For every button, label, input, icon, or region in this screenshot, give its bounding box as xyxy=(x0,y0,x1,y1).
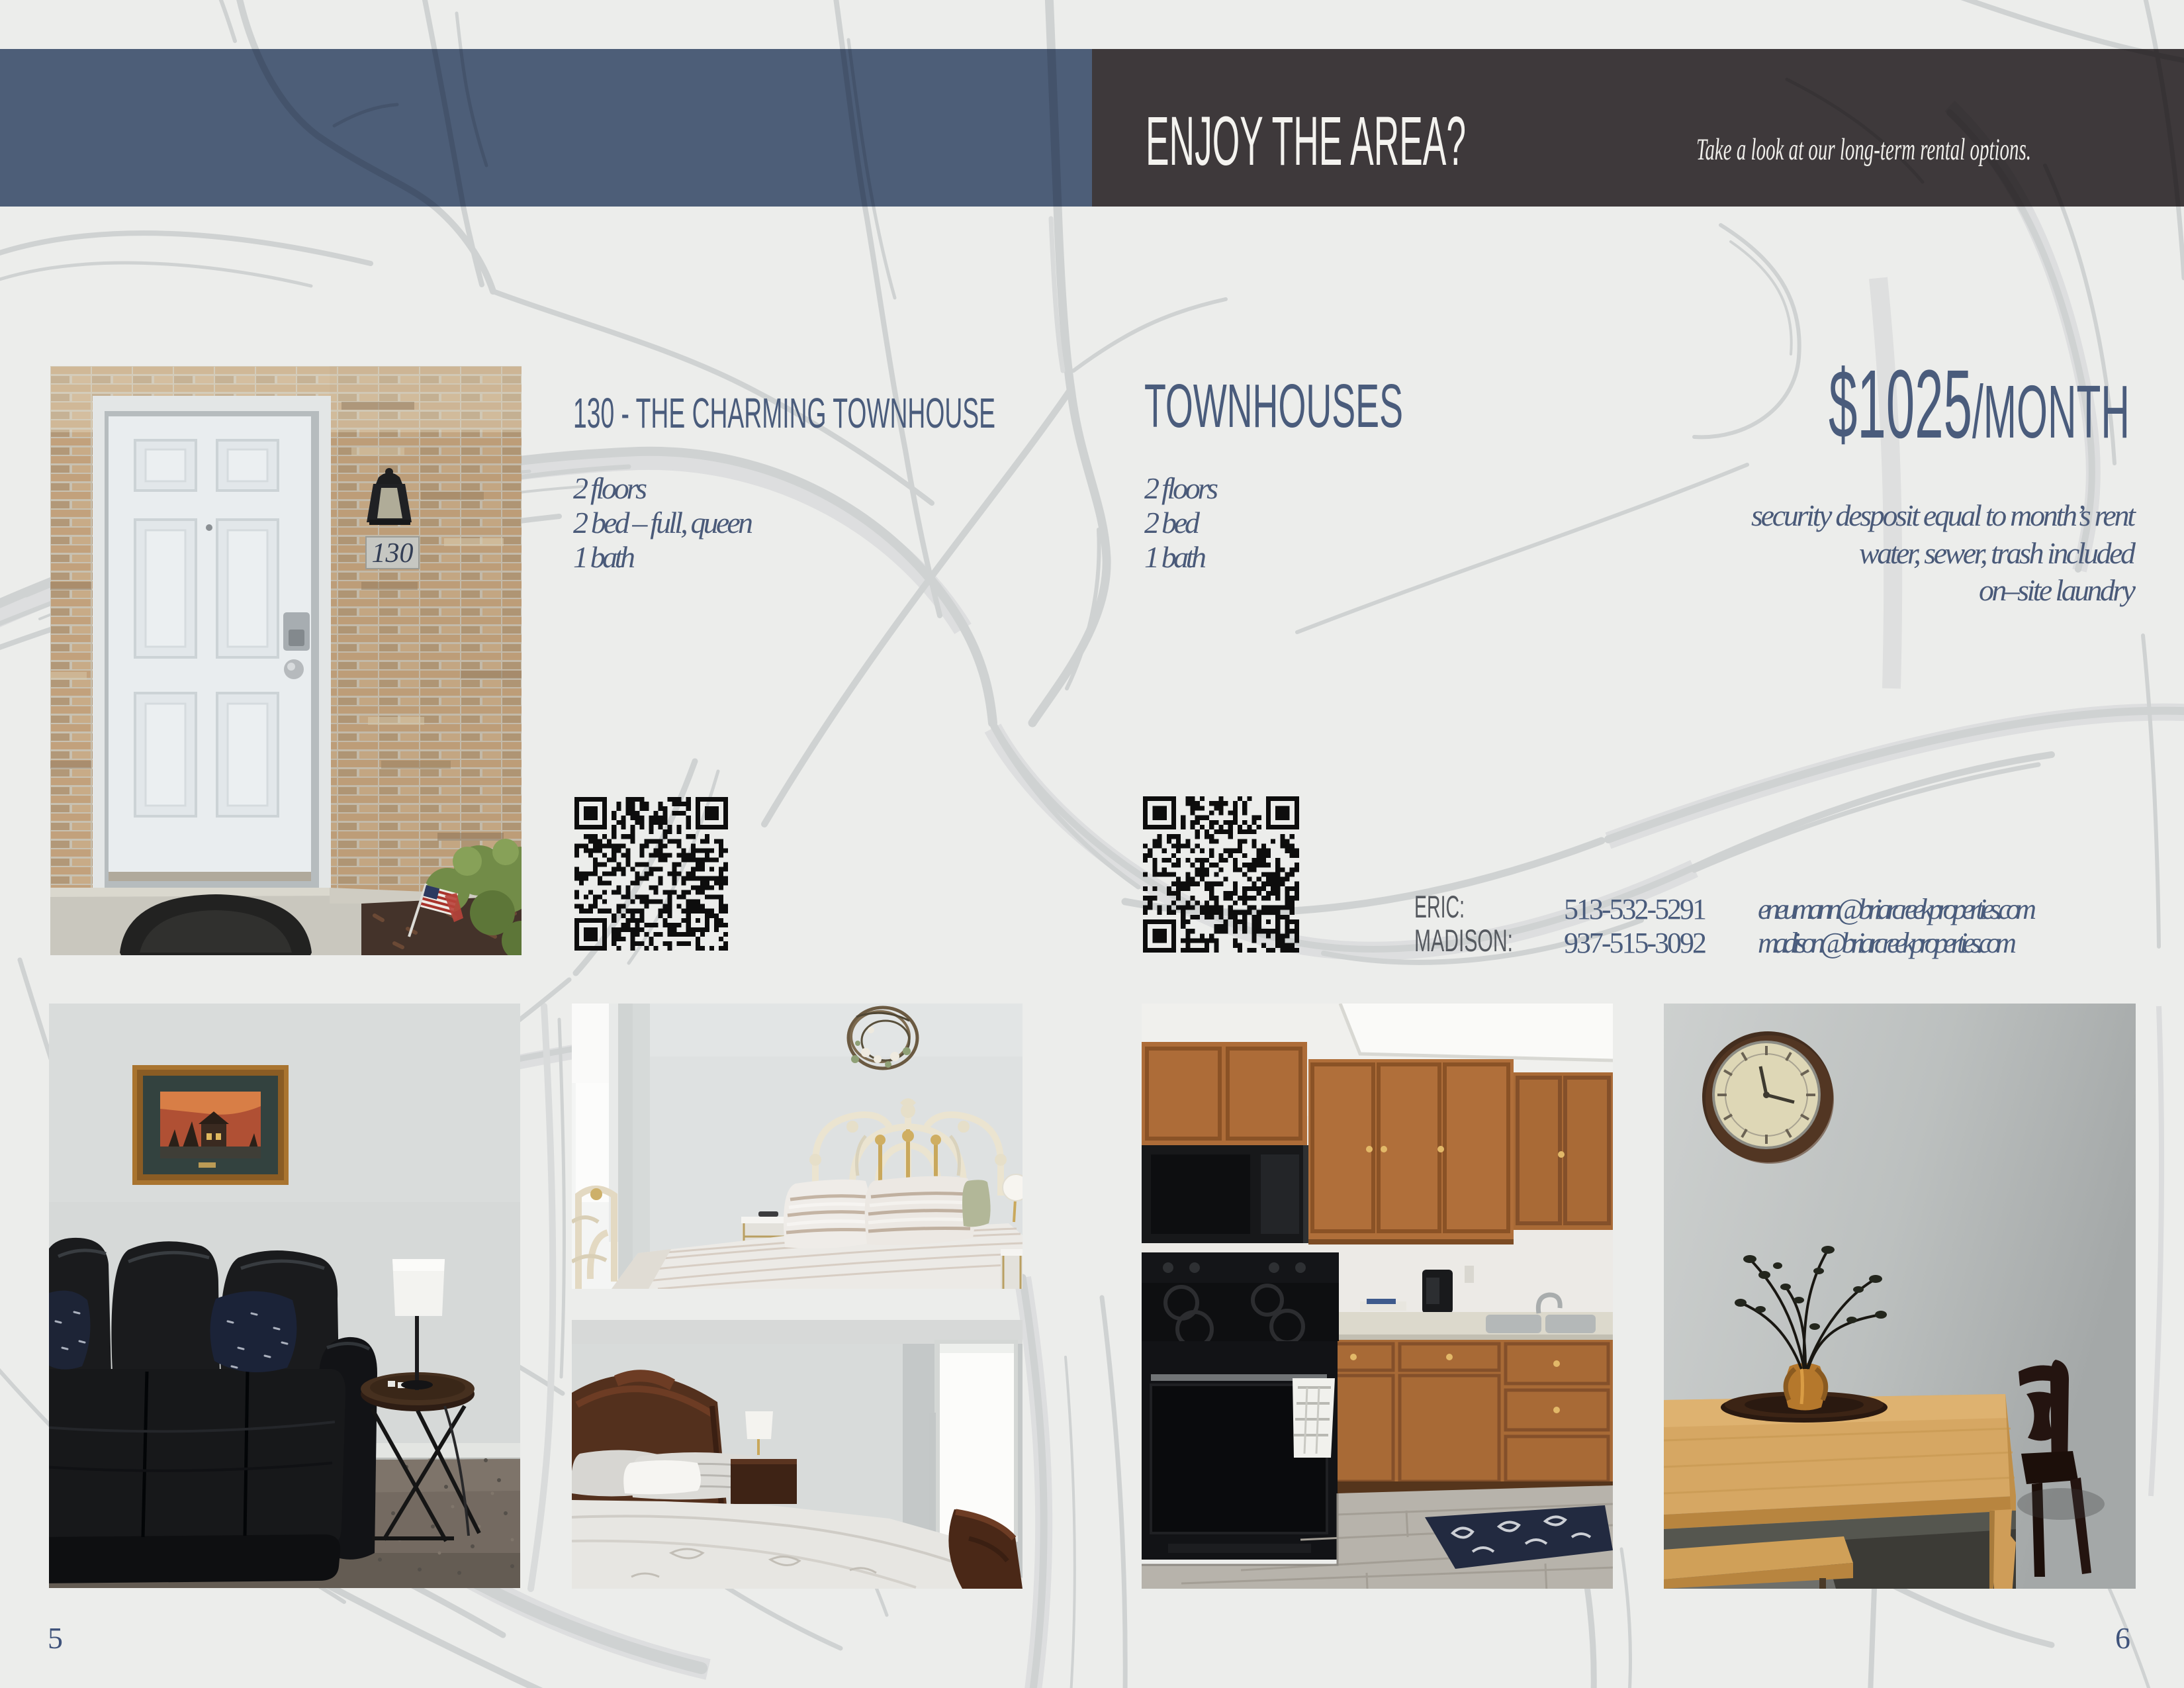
svg-text:$1025: $1025 xyxy=(1829,350,1972,457)
svg-text:2 floors: 2 floors xyxy=(573,471,647,505)
svg-text:/MONTH: /MONTH xyxy=(1972,370,2130,453)
svg-text:eneumann@briarcreekproperties.: eneumann@briarcreekproperties.com xyxy=(1758,893,2036,925)
svg-text:937-515-3092: 937-515-3092 xyxy=(1564,927,1707,959)
svg-text:MADISON:: MADISON: xyxy=(1414,923,1513,958)
svg-text:madison@briarcreekproperties.c: madison@briarcreekproperties.com xyxy=(1758,927,2017,959)
svg-text:1 bath: 1 bath xyxy=(1144,540,1206,574)
svg-text:130: 130 xyxy=(372,538,414,569)
svg-text:130 - THE CHARMING TOWNHOUSE: 130 - THE CHARMING TOWNHOUSE xyxy=(573,389,995,437)
svg-text:1 bath: 1 bath xyxy=(573,540,635,574)
svg-text:security desposit equal to mon: security desposit equal to month’s rent xyxy=(1751,498,2136,532)
svg-text:Take a look at our long-term r: Take a look at our long-term rental opti… xyxy=(1696,132,2031,167)
svg-text:2 floors: 2 floors xyxy=(1144,471,1218,505)
svg-text:TOWNHOUSES: TOWNHOUSES xyxy=(1144,371,1403,440)
svg-text:513-532-5291: 513-532-5291 xyxy=(1564,893,1707,925)
svg-text:2 bed: 2 bed xyxy=(1144,506,1201,539)
svg-text:2 bed – full, queen: 2 bed – full, queen xyxy=(573,506,753,539)
svg-text:on–site laundry: on–site laundry xyxy=(1979,573,2136,607)
svg-text:ENJOY THE AREA?: ENJOY THE AREA? xyxy=(1146,103,1466,180)
svg-text:water, sewer, trash included: water, sewer, trash included xyxy=(1859,536,2136,570)
svg-text:ERIC:: ERIC: xyxy=(1414,889,1465,924)
